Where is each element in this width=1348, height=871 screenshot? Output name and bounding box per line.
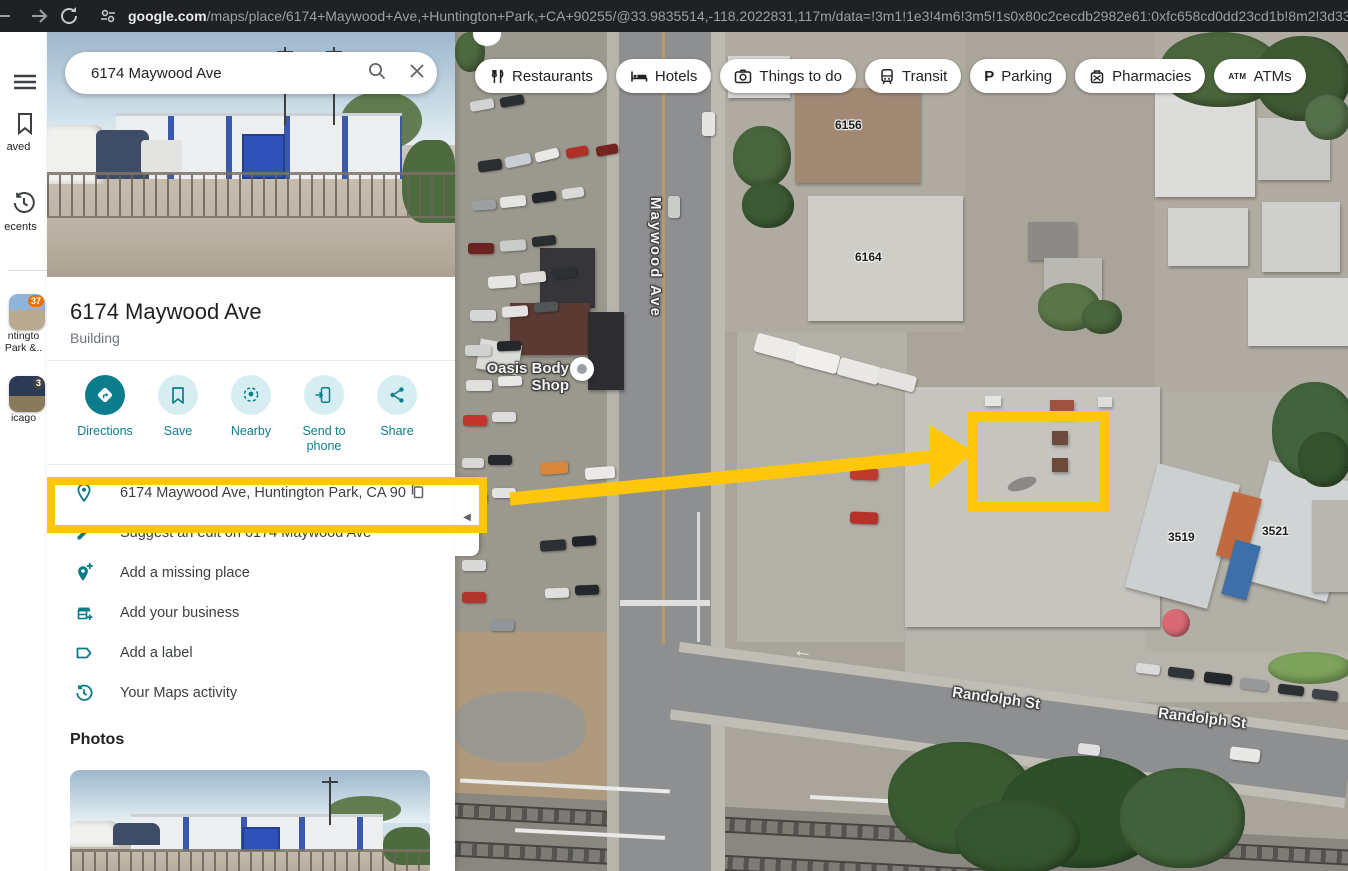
map-car [463,415,487,426]
street-label-maywood: Maywood Ave [647,197,664,318]
place-badge: 3 [33,377,44,389]
map-car [488,275,517,289]
url-path: /maps/place/6174+Maywood+Ave,+Huntington… [207,8,1348,24]
map-tree [1082,300,1122,334]
map-bldg [1052,458,1068,472]
suggest-edit-text: Suggest an edit on 6174 Maywood Ave [120,525,371,541]
maps-activity-text: Your Maps activity [120,685,237,701]
place-label: icago [0,412,47,424]
building-number-3519: 3519 [1168,530,1195,544]
road-maywood-ave [607,32,725,871]
details-list: 6174 Maywood Ave, Huntington Park, CA 90… [47,465,455,713]
photo-gate [70,849,430,871]
atm-icon: ATM [1228,72,1246,81]
chip-label: Things to do [759,68,842,85]
map-bldg [1155,92,1255,197]
chip-label: Restaurants [512,68,593,85]
browser-chrome: google.com/maps/place/6174+Maywood+Ave,+… [0,0,1348,32]
photo-gate [47,172,455,219]
map-bldg [985,396,1001,406]
page-title: 6174 Maywood Ave [70,299,455,325]
map-car [492,488,516,498]
map-bldg [808,196,963,321]
map-car [540,461,569,475]
map-car [472,199,497,211]
add-place-icon [74,562,94,584]
collapse-side-panel-button[interactable]: ◀ [455,478,479,556]
parking-icon: P [984,68,994,85]
nearby-button[interactable]: Nearby [219,375,283,454]
map-car [502,305,529,318]
address-text: 6174 Maywood Ave, Huntington Park, CA 90… [120,485,406,501]
place-panel: 6174 Maywood Ave Building Directions Sav… [47,32,455,871]
forward-arrow-icon[interactable] [14,0,50,32]
photo-building [131,814,383,851]
map-bldg [1262,202,1340,272]
map-car [468,243,494,254]
photos-thumbnail[interactable] [70,770,430,871]
map-tree [1298,432,1348,487]
map-car [534,301,559,313]
rail-divider [8,270,47,271]
place-badge: 37 [28,295,44,307]
nearby-icon [231,375,271,415]
chip-label: ATMs [1254,68,1292,85]
map-car [488,455,512,465]
add-label-row[interactable]: Add a label [47,633,455,673]
search-input[interactable] [91,65,357,82]
location-pin-icon [74,482,94,504]
save-label: Save [164,424,193,439]
pharmacy-icon [1089,68,1105,85]
storefront-icon [74,603,94,623]
url-bar[interactable]: google.com/maps/place/6174+Maywood+Ave,+… [128,8,1348,24]
map-tree [742,182,794,228]
road-centerline [662,32,665,644]
address-row[interactable]: 6174 Maywood Ave, Huntington Park, CA 90… [47,473,455,513]
map-car [490,620,514,631]
chip-parking[interactable]: P Parking [970,59,1066,93]
site-info-icon[interactable] [88,0,128,32]
train-icon [879,68,895,85]
saved-label: aved [0,141,47,153]
map-car [668,196,680,218]
map-bldg [795,88,920,183]
map-bldg [1098,397,1112,407]
map-car [462,458,484,468]
close-icon[interactable] [397,62,437,85]
sidebar-item-chicago[interactable]: 3 icago [0,376,47,424]
photo-door [242,827,280,852]
send-to-phone-label: Send to phone [292,424,356,454]
chip-label: Pharmacies [1112,68,1191,85]
map-car [575,585,599,596]
photos-heading: Photos [47,713,455,761]
map-bldg [1028,222,1076,260]
map-bldg [588,312,624,390]
map-bldg [1312,500,1348,592]
map-car [500,239,527,252]
photo-truck [113,823,160,845]
share-button[interactable]: Share [365,375,429,454]
photo-pole [329,777,331,825]
google-maps-page: { "browser": { "url_domain": "google.com… [0,0,1348,871]
chip-pharmacies[interactable]: Pharmacies [1075,59,1205,93]
map-tree [1268,652,1348,684]
share-icon [377,375,417,415]
place-thumbnail: 37 [9,294,45,330]
back-arrow-icon[interactable] [0,0,14,32]
map-car [850,512,878,525]
menu-button[interactable] [0,70,47,99]
bookmark-icon [12,110,36,136]
maps-activity-row[interactable]: Your Maps activity [47,673,455,713]
place-label-line2: Park &.. [0,342,47,354]
add-business-row[interactable]: Add your business [47,593,455,633]
map-car [462,592,486,603]
restaurants-icon [489,68,505,85]
lane-line [697,512,700,642]
map-car [585,466,616,480]
map-tree [1305,95,1348,140]
chip-hotels[interactable]: Hotels [616,59,712,93]
url-domain: google.com [128,8,207,24]
camera-icon [734,68,752,84]
history-icon [11,190,37,216]
chip-atms[interactable]: ATM ATMs [1214,59,1305,93]
activity-history-icon [74,683,94,703]
hamburger-icon [12,70,36,94]
map-tree [1120,768,1245,868]
map-tree [733,126,791,188]
reload-icon[interactable] [50,0,88,32]
place-header: 6174 Maywood Ave Building [47,277,455,360]
map-car [850,468,878,481]
map-car [540,539,567,552]
map-car [462,560,486,571]
sidebar-item-saved[interactable]: aved [0,110,47,153]
place-label-line1: ntingto [0,330,47,342]
stop-line [620,600,710,606]
building-number-6156: 6156 [835,118,862,132]
poi-marker[interactable] [570,357,594,381]
map-car [492,412,516,422]
photo-truck [141,140,182,174]
nearby-label: Nearby [231,424,271,439]
map-category-chips: Restaurants Hotels Things to do Transit … [475,59,1306,93]
map-bldg [905,387,1160,627]
map-canvas[interactable]: ← Maywood Ave Randolph St Randolph St 61… [455,32,1348,871]
save-bookmark-icon [158,375,198,415]
send-to-phone-button[interactable]: Send to phone [292,375,356,454]
share-label: Share [380,424,413,439]
map-car [702,112,715,136]
turn-arrow-marking: ← [792,639,815,664]
chip-label: Hotels [655,68,698,85]
add-business-text: Add your business [120,605,239,621]
map-bldg [1050,400,1074,418]
sidebar-item-huntington-park[interactable]: 37 ntingto Park &.. [0,294,47,354]
add-missing-place-row[interactable]: Add a missing place [47,553,455,593]
chip-things-to-do[interactable]: Things to do [720,59,856,93]
building-number-6164: 6164 [855,250,882,264]
map-tree [955,800,1080,871]
copy-address-icon[interactable] [408,481,426,506]
map-car [497,341,521,352]
pencil-icon [74,523,94,543]
map-car [545,588,569,599]
chip-label: Parking [1001,68,1052,85]
action-buttons: Directions Save Nearby Send to phone Sha… [47,361,455,464]
hotels-icon [630,68,648,84]
chip-label: Transit [902,68,947,85]
place-category: Building [70,330,455,346]
building-number-3521: 3521 [1262,524,1289,538]
suggest-edit-row[interactable]: Suggest an edit on 6174 Maywood Ave [47,513,455,553]
send-to-phone-icon [304,375,344,415]
poi-label-oasis-body-shop: Oasis Body Shop [455,360,569,394]
add-label-text: Add a label [120,645,193,661]
map-umbrella [1162,609,1190,637]
sidebar-item-recents[interactable]: ecents [0,190,47,233]
add-missing-place-text: Add a missing place [120,565,250,581]
map-bldg [1168,208,1248,266]
directions-label: Directions [77,424,133,439]
recents-label: ecents [0,221,47,233]
app-rail: aved ecents 37 ntingto Park &.. 3 icago [0,32,47,871]
map-car [465,345,491,356]
directions-icon [85,375,125,415]
map-gravel [455,692,585,762]
map-car [572,535,597,547]
label-tag-icon [74,643,94,663]
chip-transit[interactable]: Transit [865,59,961,93]
chip-restaurants[interactable]: Restaurants [475,59,607,93]
map-car [470,310,496,321]
search-icon[interactable] [357,61,397,86]
place-thumbnail: 3 [9,376,45,412]
map-bldg [540,248,595,308]
save-button[interactable]: Save [146,375,210,454]
directions-button[interactable]: Directions [73,375,137,454]
map-bldg [1248,278,1348,346]
search-bar[interactable] [65,52,437,94]
map-bldg [1052,431,1068,445]
